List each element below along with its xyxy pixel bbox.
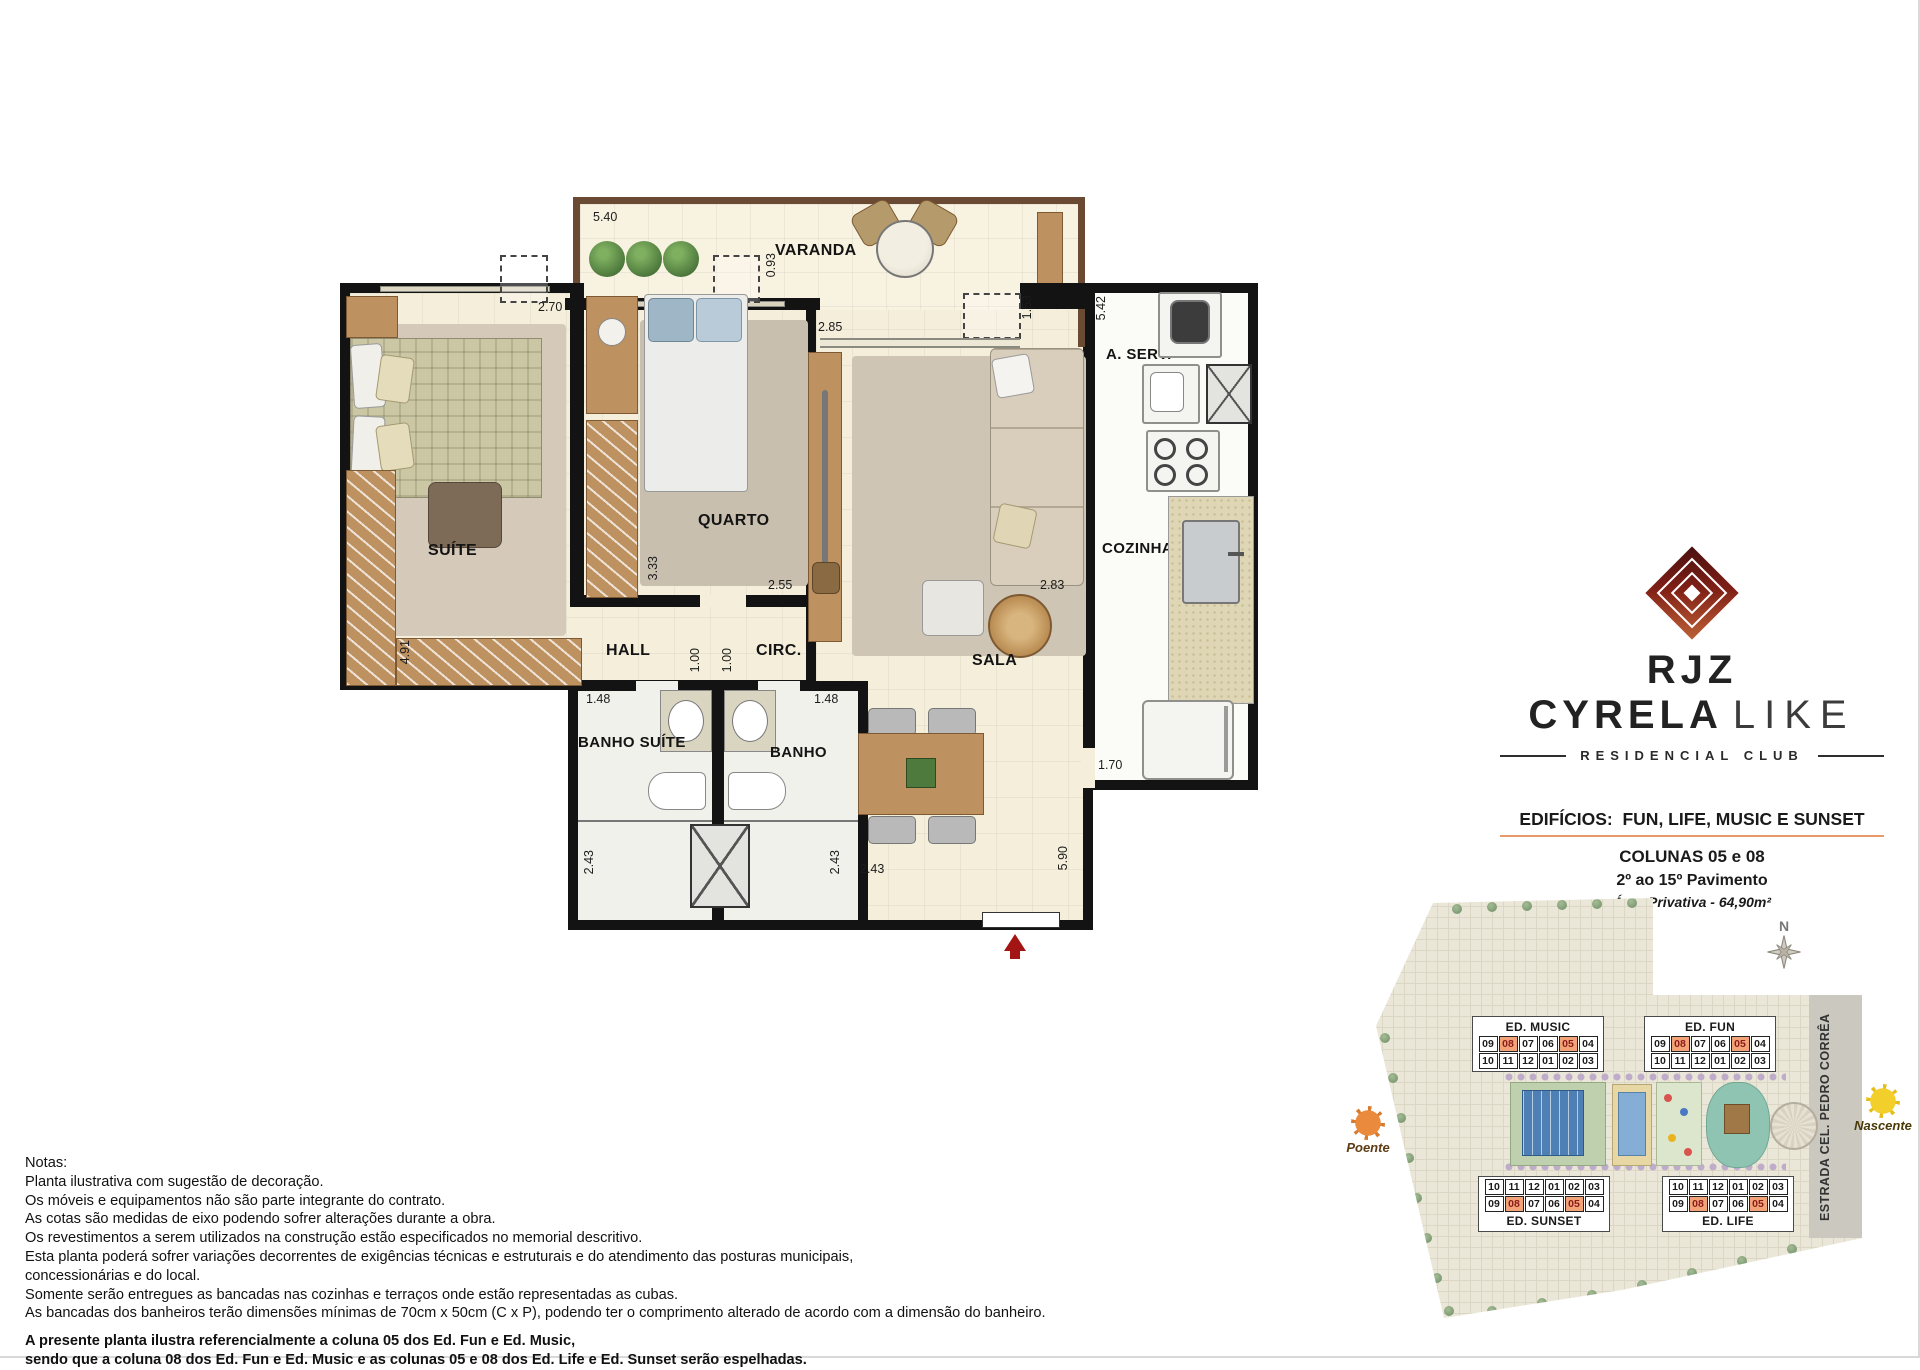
notes-lines: Planta ilustrativa com sugestão de decor… <box>25 1173 1085 1323</box>
unit-number: 02 <box>1731 1053 1750 1069</box>
tree-icon <box>1412 1193 1422 1203</box>
unit-number: 11 <box>1505 1179 1524 1195</box>
kitchen-sink <box>1182 520 1240 604</box>
unit-number: 07 <box>1691 1036 1710 1052</box>
unit-row: 101112010203 <box>1482 1179 1606 1195</box>
dining-chair <box>868 708 916 736</box>
tree-icon <box>1557 900 1567 910</box>
tree-icon <box>1388 1073 1398 1083</box>
dim-sala-width: 2.83 <box>1040 578 1064 592</box>
dim-banho-suite-width: 1.48 <box>586 692 610 706</box>
burner-icon <box>1186 464 1208 486</box>
unit-row: 101112010203 <box>1648 1053 1772 1069</box>
unit-row: 090807060504 <box>1666 1196 1790 1212</box>
unit-number: 02 <box>1565 1179 1584 1195</box>
ac-box-suite <box>500 255 548 303</box>
sun-west-label: Poente <box>1338 1140 1398 1155</box>
quarto-pillow <box>648 298 694 342</box>
building-ed-fun: ED. FUN 090807060504 101112010203 <box>1644 1016 1776 1072</box>
brand-name-like: LIKE <box>1733 693 1856 737</box>
note-line: sendo que a coluna 08 dos Ed. Fun e Ed. … <box>25 1351 1085 1370</box>
tv-icon <box>822 390 828 570</box>
dim-ac-quarto: 0.93 <box>764 253 778 277</box>
dim-sala-depth: 5.90 <box>1056 846 1070 870</box>
sun-poente-icon <box>1351 1106 1385 1140</box>
unit-number: 01 <box>1539 1053 1558 1069</box>
shrub-row <box>1504 1072 1786 1082</box>
window-sala <box>820 338 1020 348</box>
unit-number: 06 <box>1711 1036 1730 1052</box>
room-label-varanda: VARANDA <box>775 242 857 260</box>
dim-cozinha-width: 1.70 <box>1098 758 1122 772</box>
suite-wardrobe <box>346 470 396 686</box>
dim-sala-window: 2.85 <box>818 320 842 334</box>
unit-number: 03 <box>1585 1179 1604 1195</box>
building-name: ED. LIFE <box>1666 1213 1790 1229</box>
unit-number: 01 <box>1729 1179 1748 1195</box>
branding-panel: RJZ CYRELALIKE RESIDENCIAL CLUB EDIFÍCIO… <box>1500 560 1884 910</box>
wall-suite-quarto <box>570 283 584 607</box>
unit-number: 11 <box>1671 1053 1690 1069</box>
unit-number: 09 <box>1485 1196 1504 1212</box>
dim-circ: 1.00 <box>720 648 734 672</box>
compass-n-label: N <box>1762 918 1806 934</box>
dim-banho-suite-depth: 2.43 <box>582 850 596 874</box>
dim-hall: 1.00 <box>688 648 702 672</box>
note-line: Planta ilustrativa com sugestão de decor… <box>25 1173 1085 1192</box>
unit-number: 07 <box>1525 1196 1544 1212</box>
dining-chair <box>928 816 976 844</box>
ac-box-sala <box>963 293 1021 339</box>
room-label-sala: SALA <box>972 652 1017 670</box>
quarto-desk <box>586 296 638 414</box>
varanda-table <box>876 220 934 278</box>
tree-icon <box>1487 902 1497 912</box>
unit-number: 03 <box>1769 1179 1788 1195</box>
tree-icon <box>1404 1153 1414 1163</box>
playground-dot <box>1680 1108 1688 1116</box>
unit-number: 09 <box>1479 1036 1498 1052</box>
tree-icon <box>1737 1256 1747 1266</box>
unit-number: 06 <box>1729 1196 1748 1212</box>
lap-pool <box>1522 1090 1584 1156</box>
note-line: Os móveis e equipamentos não são parte i… <box>25 1192 1085 1211</box>
unit-number: 06 <box>1539 1036 1558 1052</box>
entrance-arrow-icon <box>1004 934 1026 951</box>
unit-number: 03 <box>1751 1053 1770 1069</box>
unit-row: 101112010203 <box>1476 1053 1600 1069</box>
dim-banho-depth: 2.43 <box>828 850 842 874</box>
unit-number: 01 <box>1545 1179 1564 1195</box>
unit-number: 12 <box>1691 1053 1710 1069</box>
burner-icon <box>1154 438 1176 460</box>
suite-wardrobe <box>396 638 582 686</box>
compass: N <box>1762 918 1806 975</box>
unit-number: 09 <box>1669 1196 1688 1212</box>
note-line: As bancadas dos banheiros terão dimensõe… <box>25 1304 1085 1323</box>
sun-nascente-icon <box>1866 1084 1900 1118</box>
suite-nightstand <box>346 296 398 338</box>
dim-quarto-depth: 3.33 <box>646 556 660 580</box>
plant-icon <box>663 241 699 277</box>
building-ed-sunset: 101112010203 090807060504 ED. SUNSET <box>1478 1176 1610 1232</box>
unit-row: 101112010203 <box>1666 1179 1790 1195</box>
building-name: ED. FUN <box>1648 1019 1772 1035</box>
brand-wordmark: RJZ CYRELALIKE <box>1500 648 1884 738</box>
dim-suite-width: 2.70 <box>538 300 562 314</box>
entrance-arrow-stem <box>1010 950 1020 959</box>
varanda-frame-right <box>1078 197 1085 347</box>
orange-rule <box>1500 835 1884 837</box>
service-shaft <box>1206 364 1252 424</box>
room-label-suite: SUÍTE <box>428 542 477 560</box>
duct-shaft <box>690 824 750 908</box>
brand-name: RJZ CYRELA <box>1528 648 1737 737</box>
notes-heading: Notas: <box>25 1154 1085 1173</box>
room-label-circ: CIRC. <box>756 642 802 660</box>
tree-icon <box>1687 1268 1697 1278</box>
unit-number: 08 <box>1689 1196 1708 1212</box>
unit-number: 05 <box>1565 1196 1584 1212</box>
tank-basin <box>1150 372 1184 412</box>
dim-servico-length: 5.42 <box>1094 296 1108 320</box>
lagoon-deck-hut <box>1724 1104 1750 1134</box>
unit-number: 10 <box>1669 1179 1688 1195</box>
sofa-pillow <box>992 502 1037 549</box>
unit-number: 02 <box>1559 1053 1578 1069</box>
unit-number: 08 <box>1499 1036 1518 1052</box>
mosaic-plaza <box>1770 1102 1818 1150</box>
fridge <box>1142 700 1234 780</box>
sala-pouf <box>922 580 984 636</box>
building-ed-music: ED. MUSIC 090807060504 101112010203 <box>1472 1016 1604 1072</box>
unit-number: 07 <box>1519 1036 1538 1052</box>
unit-row: 090807060504 <box>1476 1036 1600 1052</box>
dim-dining: 2.43 <box>860 862 884 876</box>
unit-row: 090807060504 <box>1482 1196 1606 1212</box>
playground <box>1656 1082 1702 1166</box>
unit-info: EDIFÍCIOS: FUN, LIFE, MUSIC E SUNSET COL… <box>1500 809 1884 910</box>
unit-number: 10 <box>1485 1179 1504 1195</box>
dim-quarto-width: 2.55 <box>768 578 792 592</box>
tree-icon <box>1637 1280 1647 1290</box>
coffee-table <box>988 594 1052 658</box>
unit-number: 04 <box>1585 1196 1604 1212</box>
tree-icon <box>1380 1033 1390 1043</box>
table-centerpiece <box>906 758 936 788</box>
banho-sink <box>732 700 768 742</box>
tree-icon <box>1452 904 1462 914</box>
dining-chair <box>868 816 916 844</box>
sun-east-label: Nascente <box>1852 1118 1914 1133</box>
unit-number: 04 <box>1579 1036 1598 1052</box>
banho-toilet <box>728 772 786 810</box>
quarto-pillow <box>696 298 742 342</box>
tagline-text: RESIDENCIAL CLUB <box>1580 748 1804 763</box>
tree-icon <box>1487 1306 1497 1316</box>
leisure-pool <box>1618 1092 1646 1156</box>
tree-icon <box>1522 901 1532 911</box>
suite-cushion <box>375 354 415 404</box>
dim-varanda-width: 5.40 <box>593 210 617 224</box>
banho-suite-toilet <box>648 772 706 810</box>
building-ed-life: 101112010203 090807060504 ED. LIFE <box>1662 1176 1794 1232</box>
sofa-pillow <box>991 353 1035 399</box>
note-line: Os revestimentos a serem utilizados na c… <box>25 1229 1085 1248</box>
building-name: ED. MUSIC <box>1476 1019 1600 1035</box>
unit-number: 04 <box>1751 1036 1770 1052</box>
road-label: ESTRADA CEL. PEDRO CORRÊA <box>1818 998 1832 1236</box>
unit-number: 05 <box>1749 1196 1768 1212</box>
unit-number: 11 <box>1689 1179 1708 1195</box>
entrance-door <box>982 912 1060 928</box>
unit-number: 08 <box>1505 1196 1524 1212</box>
edificios-title: EDIFÍCIOS: FUN, LIFE, MUSIC E SUNSET <box>1500 809 1884 830</box>
unit-number: 12 <box>1519 1053 1538 1069</box>
plant-icon <box>626 241 662 277</box>
tree-icon <box>1627 898 1637 908</box>
compass-rose-icon <box>1766 934 1802 970</box>
unit-number: 12 <box>1709 1179 1728 1195</box>
dim-banho-width: 1.48 <box>814 692 838 706</box>
door-gap-quarto <box>700 595 746 607</box>
room-label-banho-suite: BANHO SUÍTE <box>578 734 660 751</box>
tree-icon <box>1432 1273 1442 1283</box>
unit-row: 090807060504 <box>1648 1036 1772 1052</box>
playground-dot <box>1668 1134 1676 1142</box>
fridge-handle <box>1224 706 1228 772</box>
note-line: As cotas são medidas de eixo podendo sof… <box>25 1210 1085 1229</box>
sun-east: Nascente <box>1852 1084 1914 1133</box>
sun-west: Poente <box>1338 1106 1398 1155</box>
tree-icon <box>1422 1233 1432 1243</box>
unit-number: 01 <box>1711 1053 1730 1069</box>
suite-ottoman <box>428 482 502 548</box>
unit-number: 03 <box>1579 1053 1598 1069</box>
faucet-icon <box>1228 552 1244 556</box>
shower-divider <box>578 820 712 822</box>
notes-block: Notas: Planta ilustrativa com sugestão d… <box>25 1154 1085 1370</box>
unit-number: 05 <box>1559 1036 1578 1052</box>
unit-number: 10 <box>1479 1053 1498 1069</box>
unit-number: 12 <box>1525 1179 1544 1195</box>
room-label-banho: BANHO <box>770 744 827 761</box>
unit-number: 06 <box>1545 1196 1564 1212</box>
note-line: concessionárias e do local. <box>25 1267 1085 1286</box>
tree-icon <box>1537 1298 1547 1308</box>
tree-icon <box>1787 1244 1797 1254</box>
dim-suite-depth: 4.91 <box>398 640 412 664</box>
unit-number: 09 <box>1651 1036 1670 1052</box>
burner-icon <box>1154 464 1176 486</box>
unit-number: 04 <box>1769 1196 1788 1212</box>
hex-pouf <box>812 562 840 594</box>
tree-icon <box>1444 1306 1454 1316</box>
playground-dot <box>1664 1094 1672 1102</box>
dining-chair <box>928 708 976 736</box>
room-label-hall: HALL <box>606 642 650 660</box>
unit-number: 11 <box>1499 1053 1518 1069</box>
tree-icon <box>1592 899 1602 909</box>
tree-icon <box>1587 1290 1597 1300</box>
tagline-rule <box>1818 755 1884 757</box>
unit-number: 08 <box>1671 1036 1690 1052</box>
brand-tagline: RESIDENCIAL CLUB <box>1500 748 1884 763</box>
washer-door <box>1170 300 1210 344</box>
room-label-cozinha: COZINHA <box>1102 540 1173 557</box>
plant-icon <box>589 241 625 277</box>
tagline-rule <box>1500 755 1566 757</box>
playground-dot <box>1684 1148 1692 1156</box>
note-line: Somente serão entregues as bancadas nas … <box>25 1286 1085 1305</box>
pavimento-text: 2º ao 15º Pavimento <box>1500 872 1884 890</box>
passage-sala-cozinha <box>1081 748 1095 788</box>
unit-number: 07 <box>1709 1196 1728 1212</box>
note-line: A presente planta ilustra referencialmen… <box>25 1332 1085 1351</box>
quarto-lamp <box>598 318 626 346</box>
site-plan: ESTRADA CEL. PEDRO CORRÊA <box>1372 898 1872 1348</box>
notes-footer: A presente planta ilustra referencialmen… <box>25 1332 1085 1370</box>
colunas-text: COLUNAS 05 e 08 <box>1500 847 1884 867</box>
unit-number: 05 <box>1731 1036 1750 1052</box>
brand-diamond-icon <box>1645 546 1738 639</box>
room-label-quarto: QUARTO <box>698 512 769 530</box>
shower-divider <box>724 820 858 822</box>
quarto-wardrobe <box>586 420 638 598</box>
dim-ac-sala: 1.53 <box>1020 295 1034 319</box>
suite-cushion <box>375 422 415 472</box>
unit-number: 10 <box>1651 1053 1670 1069</box>
note-line: Esta planta poderá sofrer variações deco… <box>25 1248 1085 1267</box>
unit-number: 02 <box>1749 1179 1768 1195</box>
burner-icon <box>1186 438 1208 460</box>
building-name: ED. SUNSET <box>1482 1213 1606 1229</box>
